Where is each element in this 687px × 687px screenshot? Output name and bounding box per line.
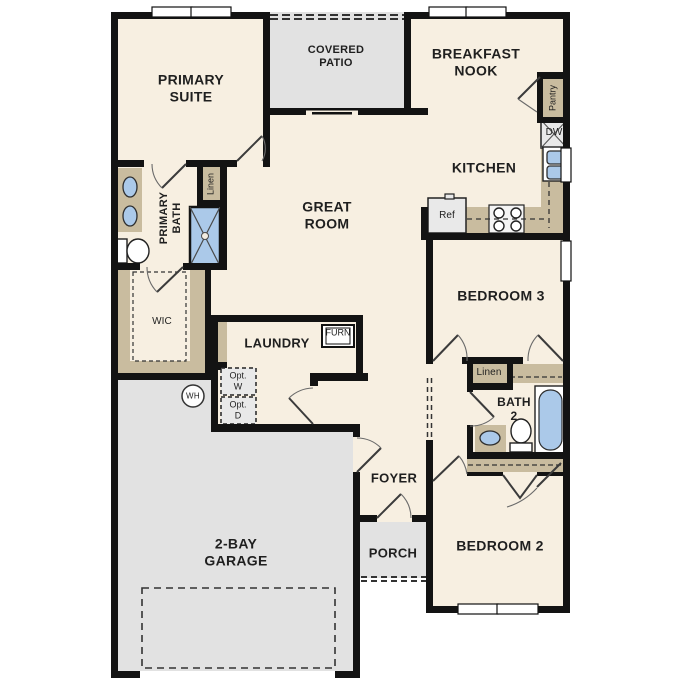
breakfast-nook-window xyxy=(466,7,506,17)
kitchen-window xyxy=(561,148,571,182)
primary-sink-2 xyxy=(123,206,137,226)
bath2-tub xyxy=(535,386,566,454)
label-garage: 2-BAY GARAGE xyxy=(204,535,267,568)
bedroom2-window xyxy=(458,604,498,614)
label-dishwasher: DW xyxy=(546,127,563,139)
patio-slider-door xyxy=(306,108,358,111)
floor-plan-graphics xyxy=(0,0,687,687)
label-foyer: FOYER xyxy=(371,470,417,485)
bedroom3-closet-shelf xyxy=(510,364,563,383)
label-wic: WIC xyxy=(152,316,172,328)
label-great-room: GREAT ROOM xyxy=(302,198,351,231)
label-pantry: Pantry xyxy=(548,85,559,111)
label-primary-linen: Linen xyxy=(206,173,217,195)
bath2-sink xyxy=(480,431,500,445)
label-laundry: LAUNDRY xyxy=(244,335,309,350)
garage-area-left xyxy=(118,380,218,671)
label-covered-patio: COVERED PATIO xyxy=(308,44,365,70)
primary-toilet xyxy=(117,239,149,263)
primary-shower xyxy=(190,207,220,266)
bedroom2-window xyxy=(497,604,538,614)
label-bath2: BATH 2 xyxy=(497,395,531,423)
primary-suite-window xyxy=(152,7,192,17)
breakfast-nook-window xyxy=(429,7,467,17)
label-furnace: FURN xyxy=(326,328,351,339)
primary-sink-1 xyxy=(123,177,137,197)
label-refrigerator: Ref xyxy=(439,210,455,222)
bath2-toilet xyxy=(510,419,532,452)
label-opt-washer: Opt. W xyxy=(229,370,246,391)
label-bedroom2: BEDROOM 2 xyxy=(456,538,544,555)
label-bedroom3: BEDROOM 3 xyxy=(457,288,545,305)
label-primary-suite: PRIMARY SUITE xyxy=(158,71,224,104)
patio-slider-door xyxy=(312,112,352,115)
label-breakfast-nook: BREAKFAST NOOK xyxy=(432,45,520,78)
label-porch: PORCH xyxy=(369,545,417,560)
floor-plan: PRIMARY SUITE COVERED PATIO BREAKFAST NO… xyxy=(0,0,687,687)
label-opt-dryer: Opt. D xyxy=(229,399,246,420)
label-primary-bath: PRIMARY BATH xyxy=(158,192,184,244)
primary-suite-window xyxy=(191,7,231,17)
label-bath2-linen: Linen xyxy=(477,367,502,379)
label-kitchen: KITCHEN xyxy=(452,160,516,177)
bedroom3-window xyxy=(561,241,571,281)
label-water-heater: WH xyxy=(186,391,200,400)
